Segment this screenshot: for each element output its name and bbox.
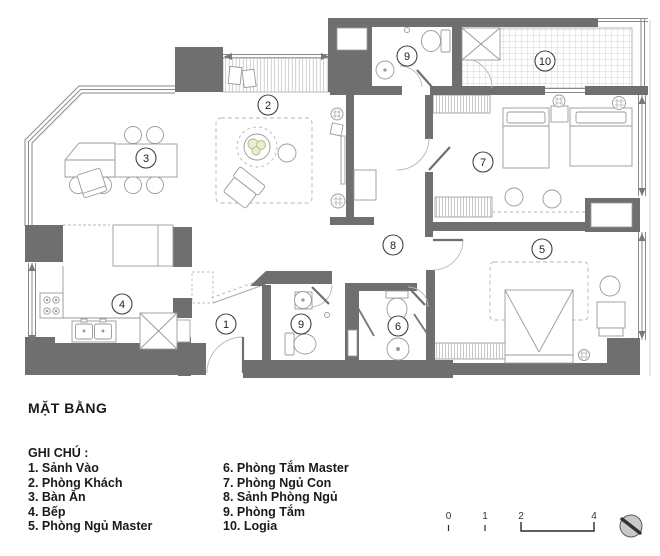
toilet-tank: [285, 333, 294, 355]
shower-glass: [358, 308, 374, 336]
ceiling-change-line: [213, 284, 266, 303]
legend-item: 8. Sảnh Phòng Ngủ: [223, 490, 349, 505]
stool: [505, 188, 523, 206]
wardrobe-hatch-kids-top: [432, 95, 490, 113]
fridge: [140, 313, 177, 349]
legend-item: 4. Bếp: [28, 505, 152, 520]
chair: [597, 302, 625, 328]
legend-item: 9. Phòng Tắm: [223, 505, 349, 520]
marker-bath-top: 9: [397, 46, 417, 66]
marker-kitchen: 4: [112, 294, 132, 314]
legend-item: 5. Phòng Ngủ Master: [28, 519, 152, 534]
toilet-bowl: [422, 31, 441, 52]
nightstand: [551, 106, 568, 122]
marker-dining: 3: [136, 148, 156, 168]
marker-loggia: 10: [535, 51, 555, 71]
compass-icon: [620, 515, 642, 537]
marker-master-bath: 6: [388, 316, 408, 336]
kitchen-sink: [72, 319, 116, 342]
master-bed: [505, 290, 573, 363]
toilet-bowl: [294, 334, 316, 354]
legend-item: 1. Sảnh Vào: [28, 461, 152, 476]
svg-text:7: 7: [480, 157, 486, 169]
marker-entry: 1: [216, 314, 236, 334]
svg-text:0: 0: [446, 511, 452, 522]
stove: [40, 293, 63, 318]
washing-machine: [462, 28, 500, 60]
page-title: MẶT BẰNG: [28, 400, 107, 416]
hallway-cabinet: [354, 170, 376, 200]
marker-bedroom-hall: 8: [383, 235, 403, 255]
balcony-seat: [228, 66, 242, 84]
legend-column-1: 1. Sảnh Vào 2. Phòng Khách 3. Bàn Ăn 4. …: [28, 461, 152, 534]
svg-text:4: 4: [119, 299, 125, 311]
legend-item: 10. Logia: [223, 519, 349, 534]
scale-bar: 0 1 2 4: [446, 511, 598, 531]
svg-text:5: 5: [539, 244, 545, 256]
legend-heading: GHI CHÚ :: [28, 446, 88, 460]
legend-item: 3. Bàn Ăn: [28, 490, 152, 505]
svg-text:9: 9: [298, 319, 304, 331]
balcony-seat: [242, 69, 256, 88]
wardrobe-hatch-master: [433, 343, 507, 359]
svg-text:2: 2: [265, 100, 271, 112]
stool: [543, 190, 561, 208]
svg-text:9: 9: [404, 51, 410, 63]
tv-console: [330, 108, 345, 208]
legend-item: 2. Phòng Khách: [28, 476, 152, 491]
toilet-tank: [441, 30, 450, 52]
svg-text:3: 3: [143, 153, 149, 165]
round-table: [600, 276, 620, 296]
legend-column-2: 6. Phòng Tắm Master 7. Phòng Ngủ Con 8. …: [223, 461, 349, 534]
svg-text:8: 8: [390, 240, 396, 252]
side-table: [278, 144, 296, 162]
svg-text:10: 10: [539, 56, 551, 68]
floor-plan-page: 1 2 3 4 5 6 7 8 9 9 10 0 1 2 4 MẶT BẰNG …: [0, 0, 660, 556]
marker-bath-bottom: 9: [291, 314, 311, 334]
svg-text:1: 1: [223, 319, 229, 331]
wardrobe-hatch-kids-bottom: [435, 197, 492, 217]
marker-master-bedroom: 5: [532, 239, 552, 259]
svg-text:4: 4: [591, 511, 597, 522]
svg-text:6: 6: [395, 321, 401, 333]
legend-item: 7. Phòng Ngủ Con: [223, 476, 349, 491]
legend-item: 6. Phòng Tắm Master: [223, 461, 349, 476]
marker-living: 2: [258, 95, 278, 115]
kids-bedroom: [503, 95, 632, 208]
svg-text:2: 2: [518, 511, 524, 522]
marker-kids-bedroom: 7: [473, 152, 493, 172]
svg-text:1: 1: [482, 511, 488, 522]
toilet-tank: [386, 291, 408, 298]
